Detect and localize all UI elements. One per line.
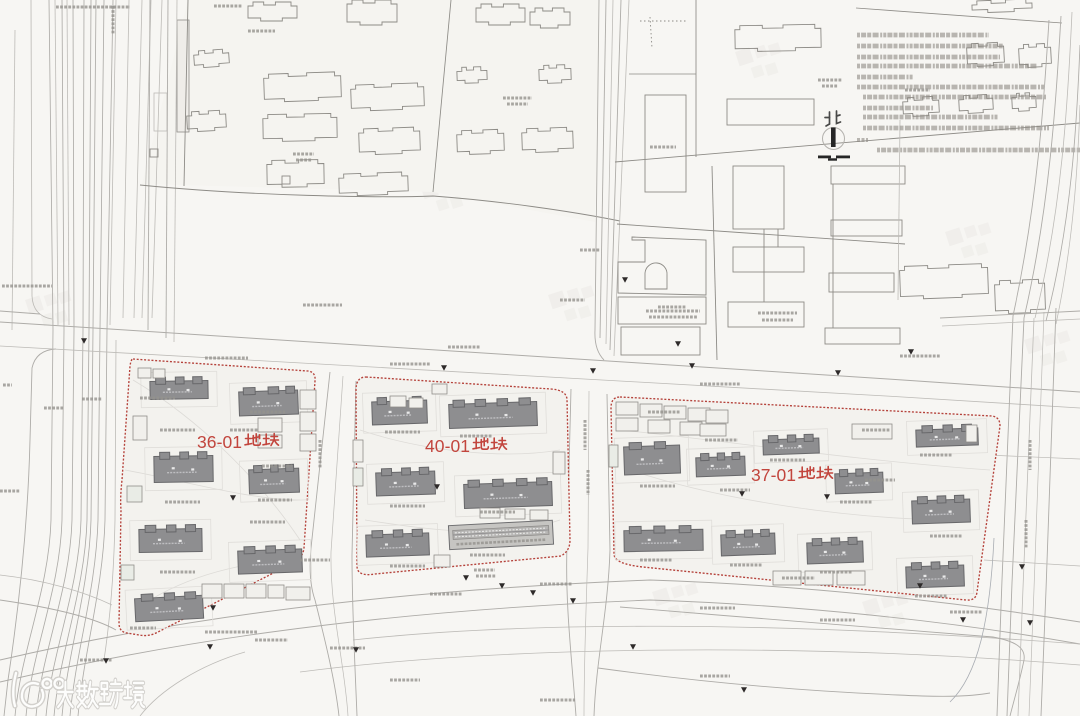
svg-text:40-01: 40-01 bbox=[425, 436, 470, 456]
svg-text:36-01: 36-01 bbox=[197, 432, 242, 452]
svg-text:37-01: 37-01 bbox=[751, 465, 796, 485]
